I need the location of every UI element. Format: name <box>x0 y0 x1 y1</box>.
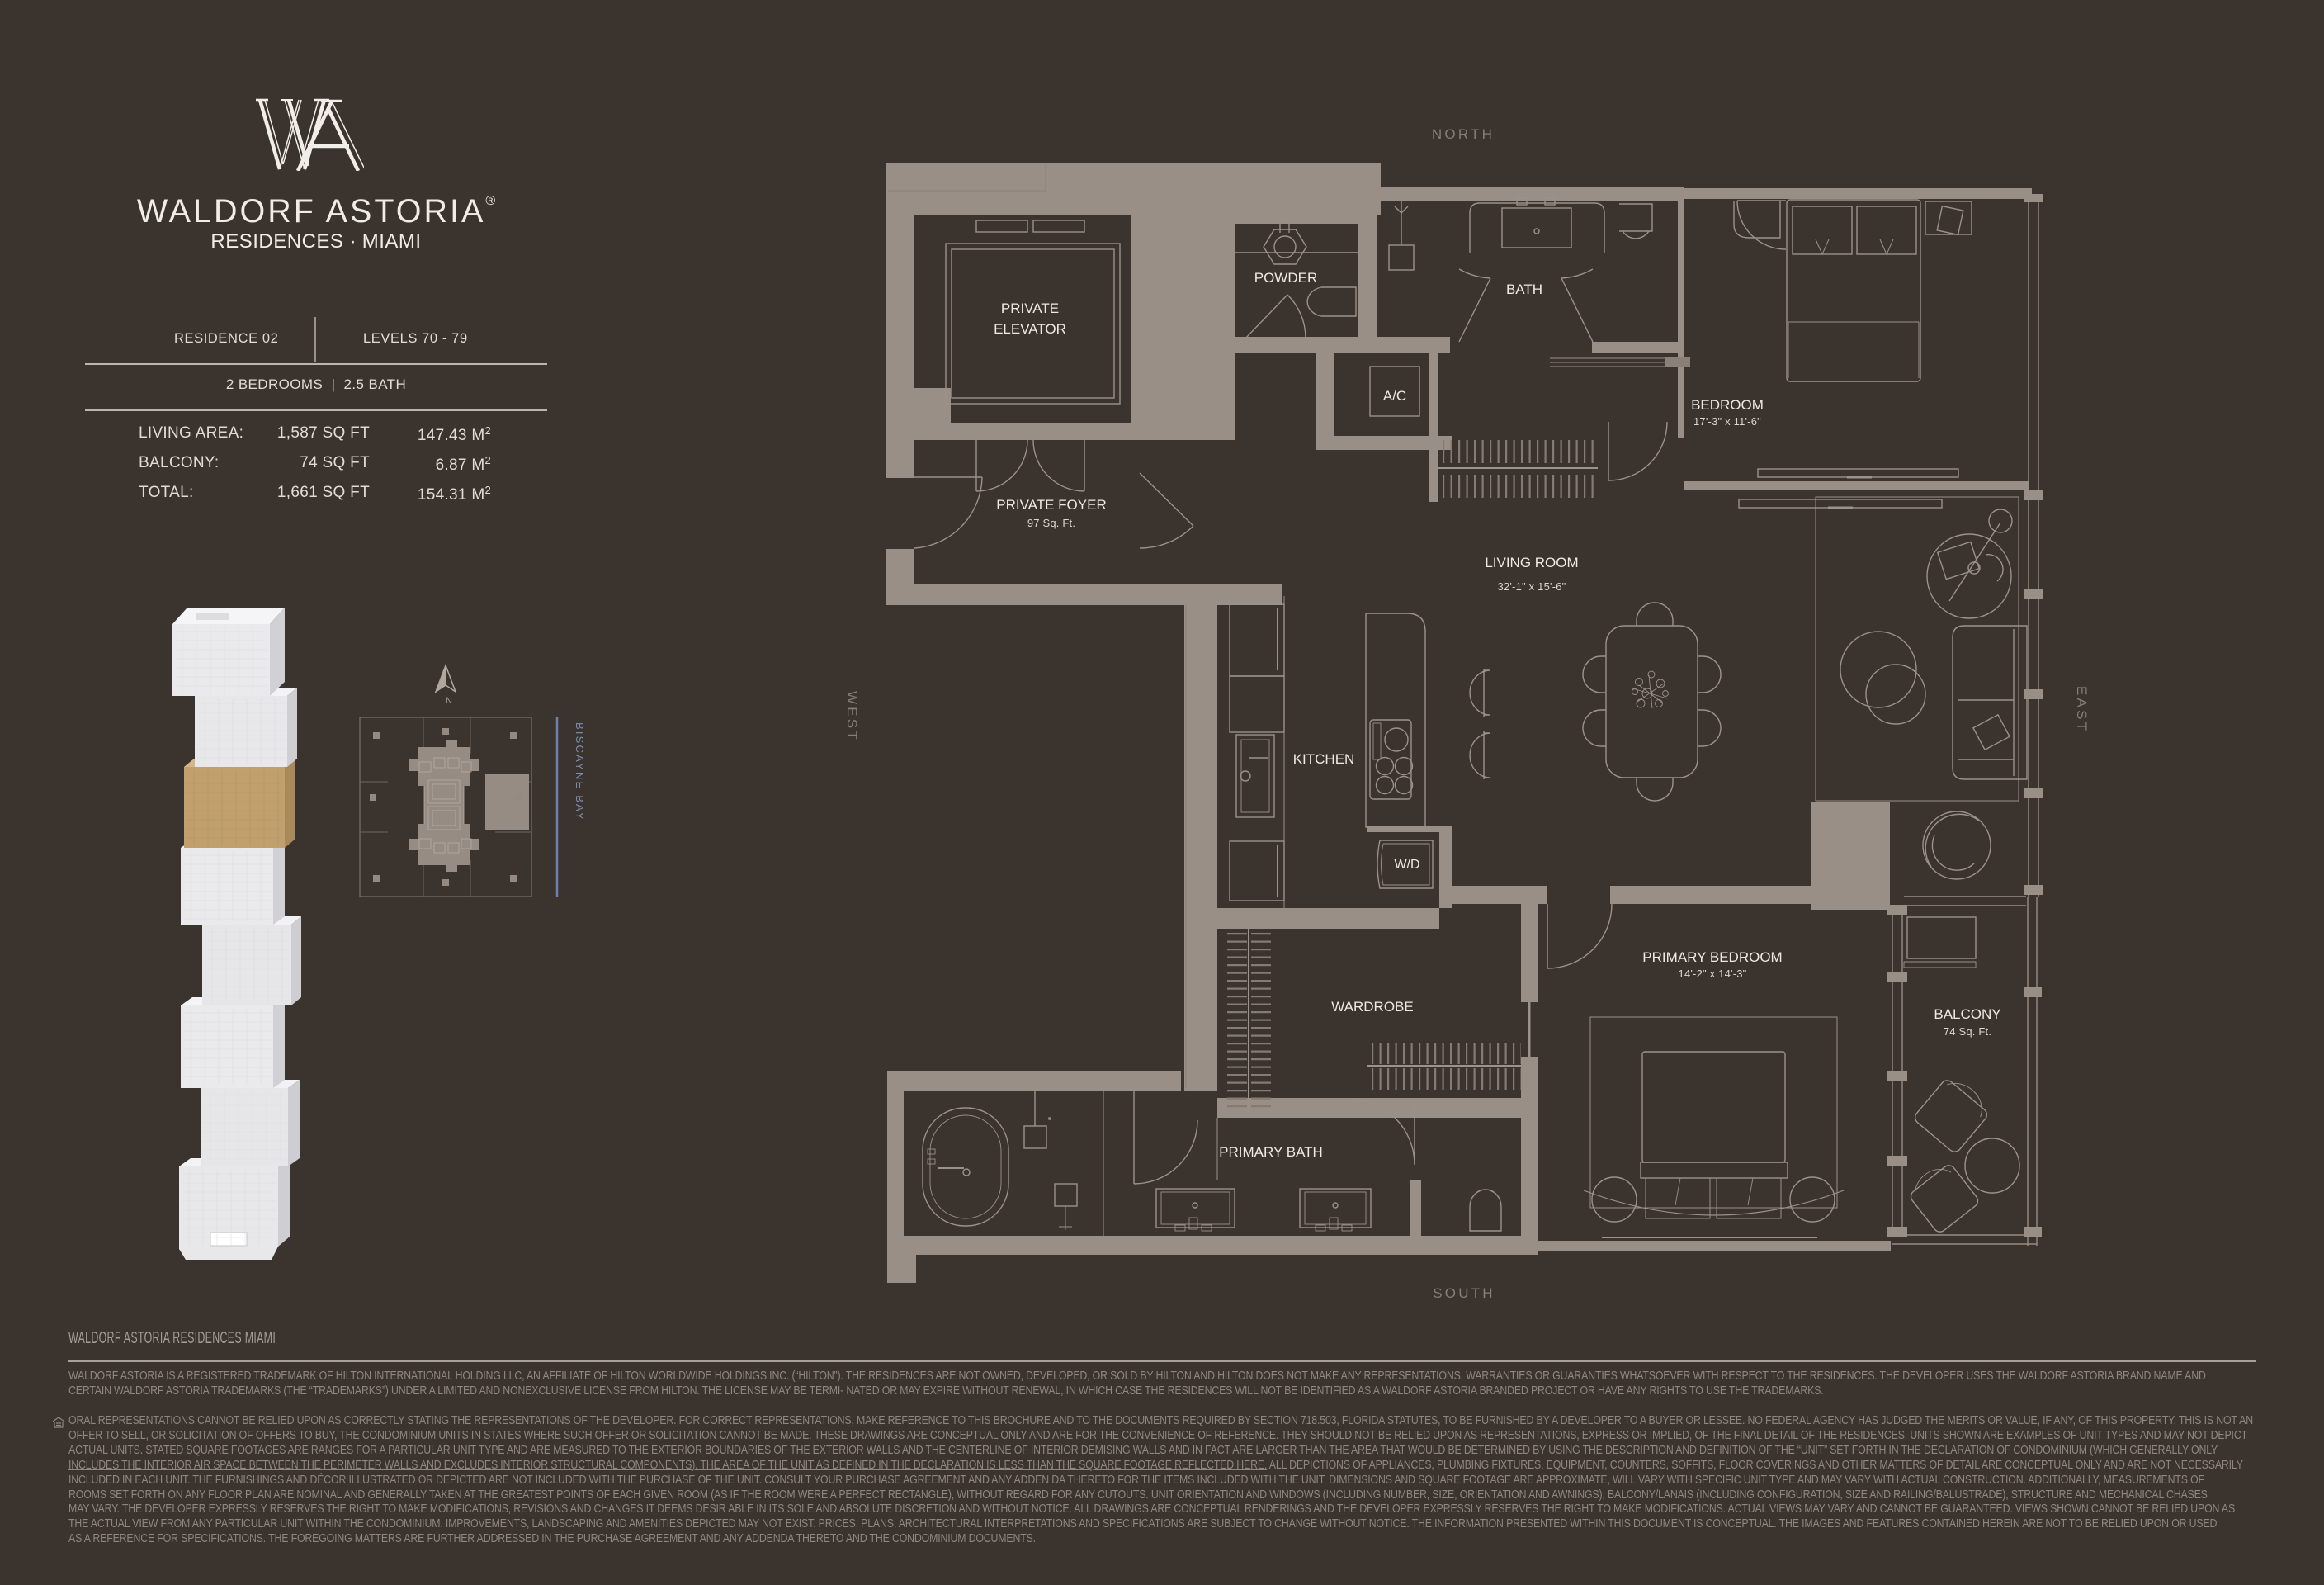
svg-text:LIVING ROOM: LIVING ROOM <box>1485 555 1578 570</box>
svg-text:BEDROOM: BEDROOM <box>1691 397 1764 413</box>
svg-text:NORTH: NORTH <box>1432 126 1495 142</box>
svg-text:14'-2" x 14'-3": 14'-2" x 14'-3" <box>1679 968 1747 980</box>
svg-text:97 Sq. Ft.: 97 Sq. Ft. <box>1027 517 1075 529</box>
svg-text:WEST: WEST <box>844 691 860 742</box>
svg-text:BISCAYNE BAY: BISCAYNE BAY <box>574 722 586 821</box>
svg-text:WARDROBE: WARDROBE <box>1331 999 1414 1015</box>
svg-text:ELEVATOR: ELEVATOR <box>994 321 1066 337</box>
svg-text:PRIVATE FOYER: PRIVATE FOYER <box>996 497 1107 513</box>
svg-text:POWDER: POWDER <box>1254 270 1318 286</box>
svg-text:74 Sq. Ft.: 74 Sq. Ft. <box>1944 1025 1991 1038</box>
svg-text:SOUTH: SOUTH <box>1433 1285 1495 1301</box>
svg-text:PRIMARY BEDROOM: PRIMARY BEDROOM <box>1642 949 1782 965</box>
svg-text:BALCONY: BALCONY <box>1934 1006 2000 1022</box>
svg-text:KITCHEN: KITCHEN <box>1293 751 1355 767</box>
svg-text:N: N <box>446 696 452 706</box>
svg-text:32'-1" x 15'-6": 32'-1" x 15'-6" <box>1498 580 1566 593</box>
svg-text:A/C: A/C <box>1383 388 1406 404</box>
svg-text:W/D: W/D <box>1394 858 1419 872</box>
svg-text:PRIMARY BATH: PRIMARY BATH <box>1219 1144 1323 1160</box>
svg-text:17'-3" x 11'-6": 17'-3" x 11'-6" <box>1693 415 1761 428</box>
svg-text:BATH: BATH <box>1506 282 1542 297</box>
svg-text:PRIVATE: PRIVATE <box>1001 300 1059 316</box>
svg-text:EAST: EAST <box>2074 686 2090 733</box>
